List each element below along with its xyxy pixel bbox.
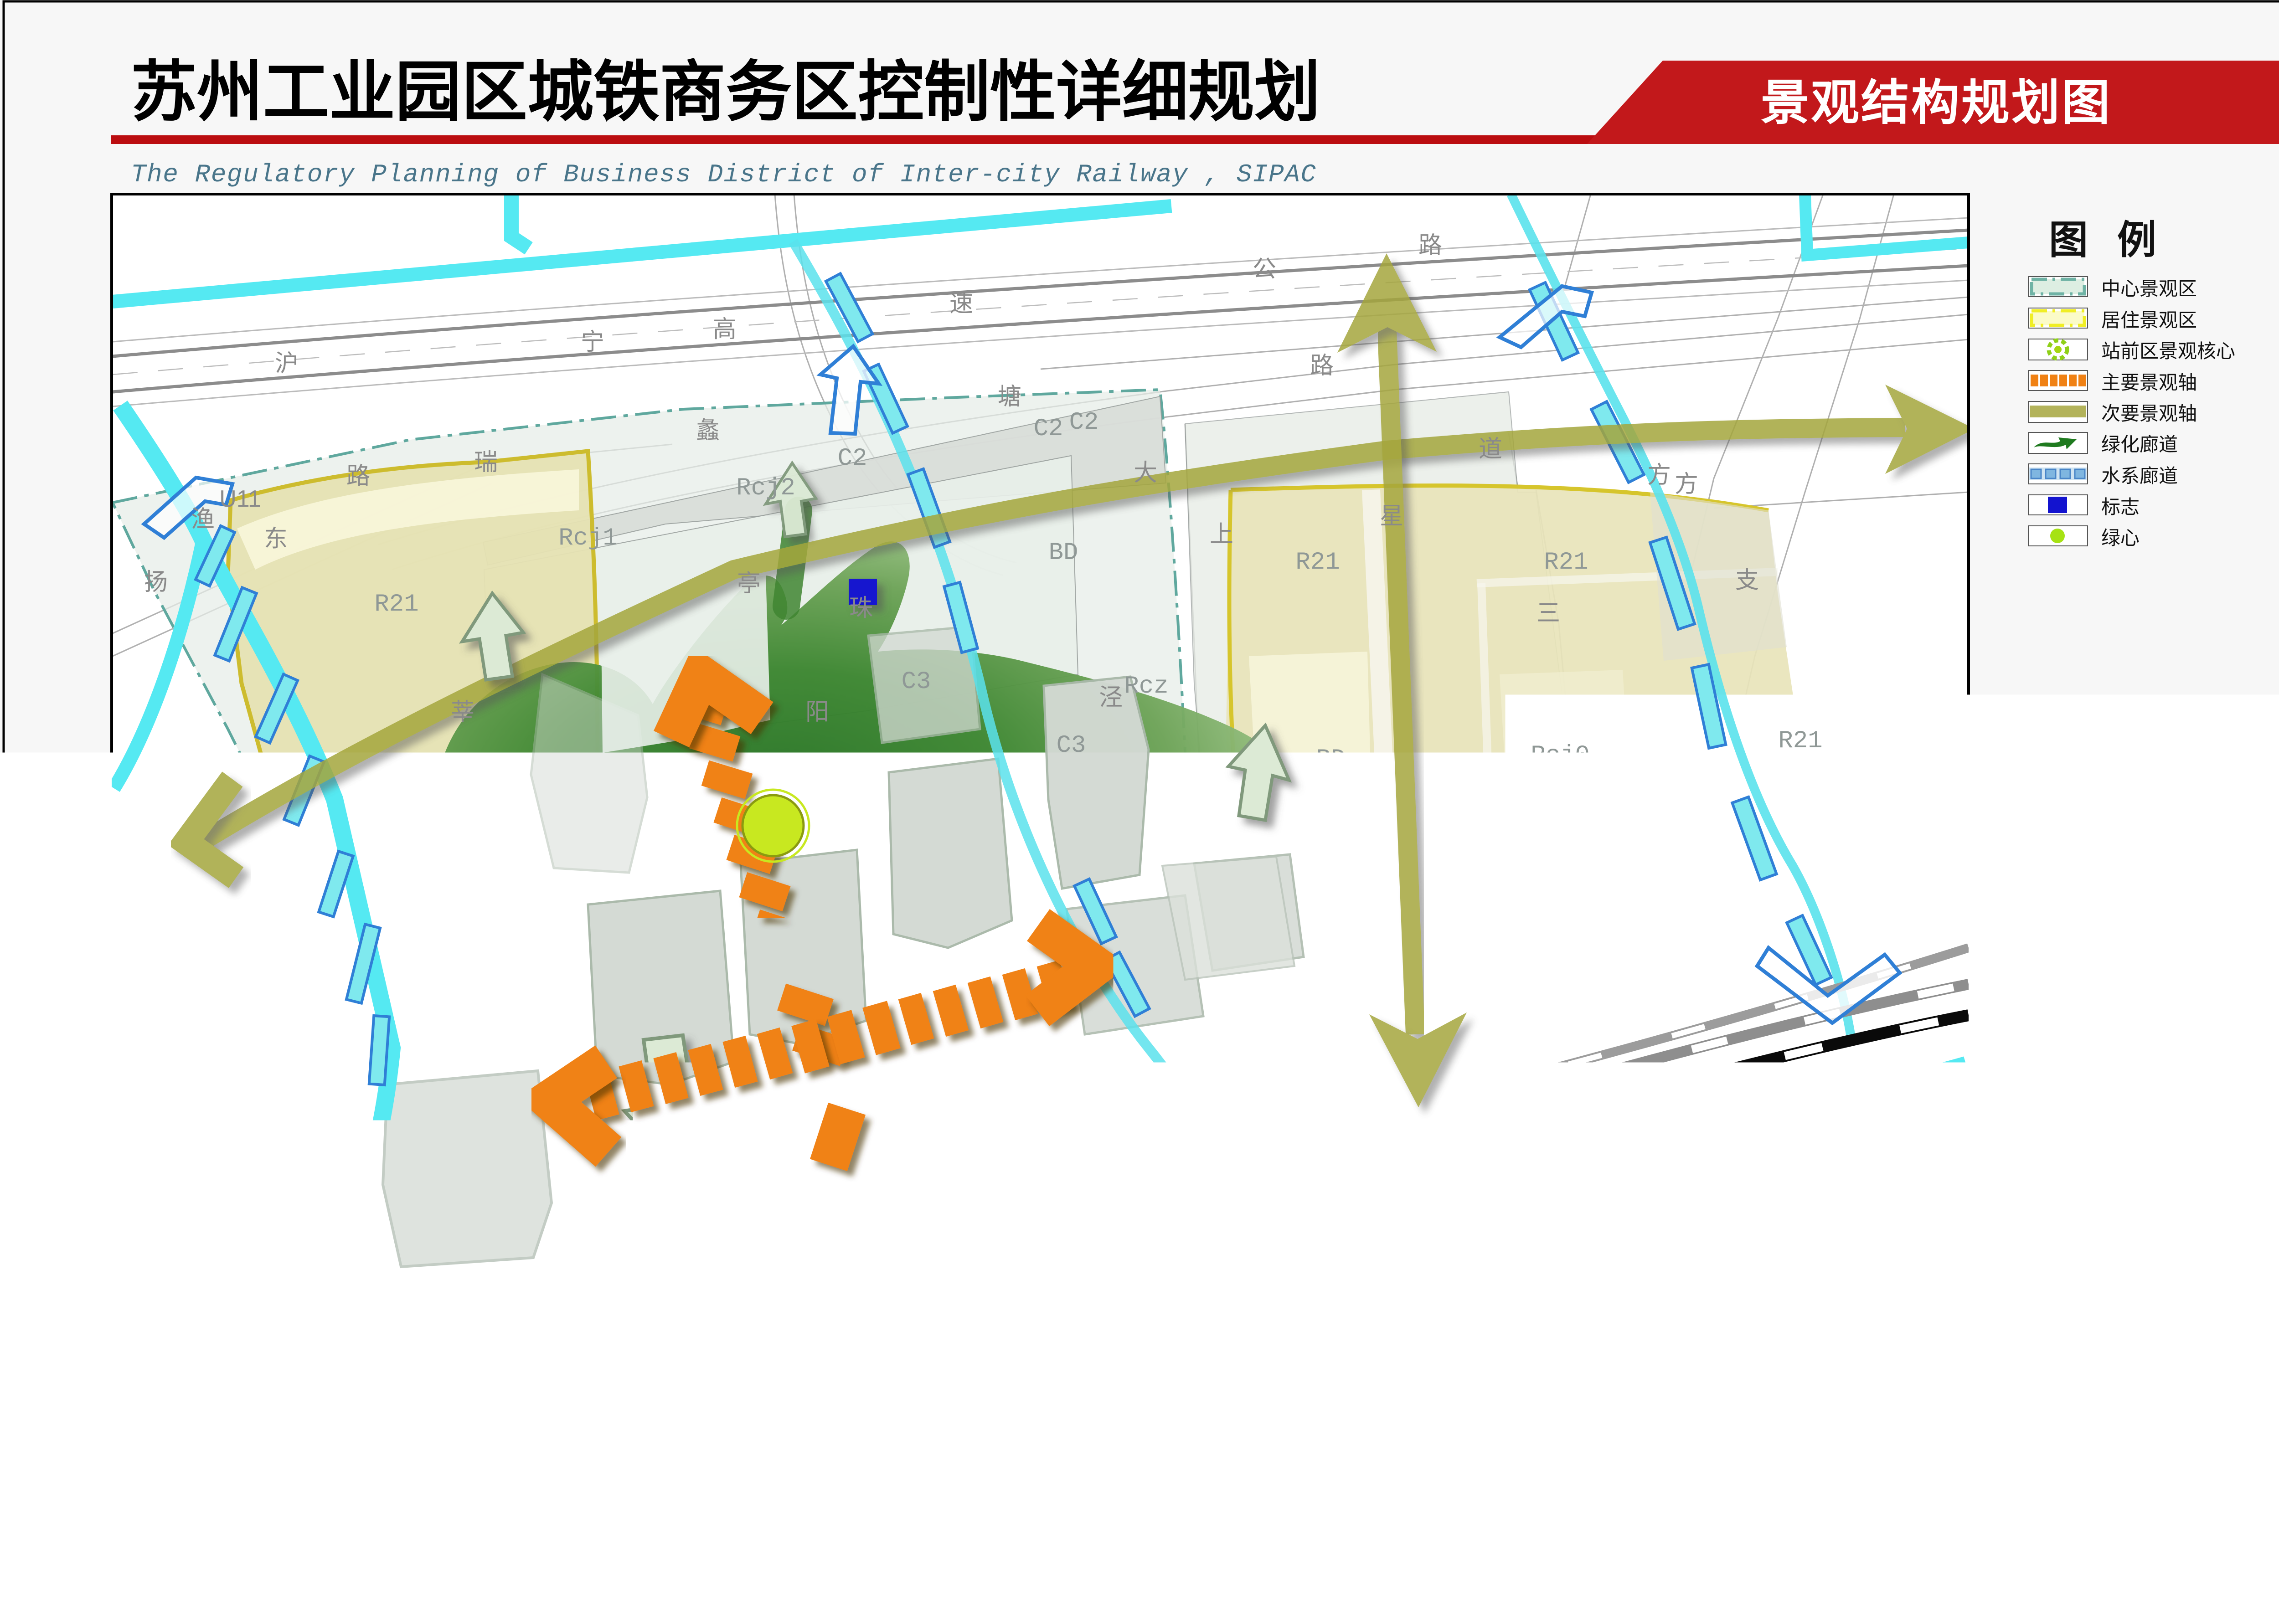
svg-text:沪: 沪: [639, 1365, 663, 1392]
svg-text:泾: 泾: [1099, 684, 1123, 711]
svg-text:高: 高: [713, 316, 737, 343]
svg-text:绿化廊道: 绿化廊道: [2101, 434, 2178, 455]
svg-text:图例: 图例: [2049, 218, 2186, 262]
svg-text:鱼: 鱼: [113, 1183, 137, 1210]
svg-text:晨: 晨: [623, 812, 646, 838]
svg-text:BD: BD: [1316, 745, 1346, 773]
svg-text:C2: C2: [772, 930, 801, 958]
svg-text:BD: BD: [1049, 539, 1078, 567]
svg-text:环: 环: [586, 1448, 609, 1475]
svg-text:泾: 泾: [1835, 757, 1858, 784]
svg-text:Rcz: Rcz: [1124, 673, 1168, 700]
svg-text:方: 方: [1675, 471, 1698, 498]
svg-text:和: 和: [1013, 1073, 1036, 1100]
svg-text:娄: 娄: [1193, 861, 1217, 888]
svg-text:跨: 跨: [624, 1002, 648, 1029]
svg-text:路: 路: [346, 463, 370, 489]
svg-text:东: 东: [264, 526, 288, 552]
svg-text:R21: R21: [1312, 861, 1356, 889]
svg-text:居住景观区: 居住景观区: [2101, 309, 2197, 331]
svg-text:莘: 莘: [451, 699, 474, 725]
svg-text:速: 速: [1521, 1192, 1545, 1218]
svg-text:U11: U11: [219, 486, 261, 512]
svg-text:支: 支: [1735, 567, 1759, 594]
svg-text:主要景观轴: 主要景观轴: [2101, 372, 2197, 393]
svg-text:扬: 扬: [144, 569, 168, 596]
svg-text:C3: C3: [902, 668, 931, 696]
svg-text:宁: 宁: [951, 1274, 975, 1300]
svg-text:Rcj1: Rcj1: [558, 524, 618, 552]
svg-text:125: 125: [2120, 1470, 2163, 1499]
svg-text:路: 路: [1653, 1071, 1676, 1097]
svg-text:250M: 250M: [2202, 1470, 2265, 1499]
svg-text:方: 方: [1647, 462, 1671, 488]
svg-text:R21: R21: [1544, 549, 1588, 576]
svg-text:河: 河: [349, 1284, 373, 1310]
svg-text:C2: C2: [642, 973, 671, 1001]
svg-text:Rcj0: Rcj0: [1531, 742, 1590, 770]
svg-text:北: 北: [341, 1502, 365, 1529]
svg-text:际: 际: [1082, 1209, 1106, 1236]
svg-text:公: 公: [1253, 256, 1276, 283]
svg-text:珑: 珑: [151, 1221, 175, 1248]
svg-text:C2: C2: [936, 834, 965, 862]
svg-text:BD: BD: [1038, 764, 1068, 791]
svg-text:C2: C2: [838, 445, 867, 473]
svg-text:延: 延: [1043, 1331, 1067, 1358]
svg-text:R21: R21: [374, 591, 418, 618]
svg-text:华: 华: [544, 788, 568, 815]
svg-text:三: 三: [1537, 600, 1560, 627]
svg-text:苏州工业园区城铁商务区控制性详细规划: 苏州工业园区城铁商务区控制性详细规划: [131, 55, 1320, 129]
svg-text:路: 路: [1644, 1031, 1668, 1058]
svg-text:街: 街: [1428, 1073, 1452, 1099]
svg-text:湖: 湖: [1401, 808, 1425, 835]
svg-text:C2: C2: [1109, 953, 1139, 981]
svg-text:珠: 珠: [849, 595, 873, 622]
svg-text:泾: 泾: [309, 827, 333, 854]
svg-text:速: 速: [949, 291, 973, 317]
svg-text:路: 路: [717, 1095, 741, 1121]
svg-text:R21: R21: [1778, 727, 1822, 755]
svg-text:The Regulatory Planning of Bus: The Regulatory Planning of Business Dist…: [131, 160, 1316, 189]
svg-text:街: 街: [167, 1256, 191, 1283]
svg-text:至: 至: [587, 1183, 611, 1210]
svg-text:泾: 泾: [1022, 830, 1046, 857]
svg-text:路: 路: [140, 1256, 164, 1283]
svg-text:河: 河: [1215, 1197, 1243, 1223]
svg-text:玲: 玲: [147, 1183, 170, 1210]
svg-text:景观结构规划图: 景观结构规划图: [1761, 76, 2112, 130]
svg-text:一: 一: [710, 1064, 734, 1090]
svg-text:上: 上: [1210, 521, 1233, 548]
svg-text:沪: 沪: [275, 350, 299, 377]
svg-text:宁: 宁: [581, 329, 604, 355]
svg-text:春: 春: [1155, 803, 1179, 829]
svg-text:沪: 沪: [170, 1404, 193, 1431]
svg-text:阳: 阳: [805, 699, 829, 725]
svg-text:东: 东: [783, 1399, 806, 1425]
svg-text:C3: C3: [1057, 732, 1086, 760]
svg-text:城: 城: [703, 1294, 727, 1321]
svg-text:泾: 泾: [1864, 757, 1887, 784]
svg-text:水系廊道: 水系廊道: [2101, 465, 2178, 487]
svg-text:路: 路: [1310, 353, 1334, 379]
svg-text:路: 路: [1418, 232, 1442, 259]
svg-text:支: 支: [702, 1021, 726, 1047]
svg-text:大: 大: [1134, 460, 1157, 486]
svg-text:快: 快: [1271, 1275, 1294, 1301]
svg-text:0: 0: [2029, 1470, 2043, 1499]
svg-text:50: 50: [2066, 1470, 2094, 1499]
svg-text:R21: R21: [1295, 549, 1340, 576]
svg-text:绿心: 绿心: [2101, 527, 2140, 549]
svg-text:江苏省城市规划设计研究院 苏州分院: 江苏省城市规划设计研究院 苏州分院: [1451, 1561, 1897, 1592]
svg-text:C2: C2: [1200, 910, 1229, 938]
svg-text:路: 路: [1919, 843, 1943, 869]
svg-text:Rcj2: Rcj2: [736, 474, 795, 502]
svg-text:蠡: 蠡: [696, 417, 720, 444]
svg-text:江: 江: [1484, 1221, 1507, 1248]
svg-text:Rcj0: Rcj0: [371, 987, 431, 1015]
svg-text:河: 河: [1894, 840, 1918, 867]
svg-text:铁: 铁: [1315, 1159, 1339, 1186]
svg-text:C2: C2: [369, 1137, 399, 1165]
svg-text:C2: C2: [1069, 409, 1099, 437]
svg-text:塘: 塘: [998, 384, 1021, 410]
svg-text:C2: C2: [1084, 791, 1114, 819]
svg-text:C2: C2: [1034, 415, 1063, 443]
svg-text:宁: 宁: [439, 1337, 463, 1363]
svg-text:BD: BD: [1107, 866, 1136, 894]
svg-text:次要景观轴: 次要景观轴: [2101, 403, 2197, 424]
svg-text:渔: 渔: [191, 506, 215, 533]
svg-text:亭: 亭: [737, 570, 761, 597]
svg-text:星: 星: [1380, 503, 1403, 529]
svg-text:道: 道: [1479, 436, 1502, 463]
svg-text:中心景观区: 中心景观区: [2101, 278, 2197, 299]
svg-text:瑞: 瑞: [474, 449, 498, 476]
svg-text:泾: 泾: [124, 1221, 147, 1248]
svg-text:R21: R21: [411, 878, 455, 905]
svg-text:路: 路: [1232, 1151, 1255, 1177]
svg-text:C2: C2: [441, 1137, 471, 1165]
svg-text:站前区景观核心: 站前区景观核心: [2101, 340, 2235, 362]
svg-text:路: 路: [1742, 1106, 1766, 1133]
svg-text:标志: 标志: [2101, 496, 2140, 518]
svg-text:娄: 娄: [832, 1435, 856, 1461]
svg-text:路: 路: [1548, 888, 1572, 915]
svg-text:路: 路: [1251, 888, 1274, 915]
